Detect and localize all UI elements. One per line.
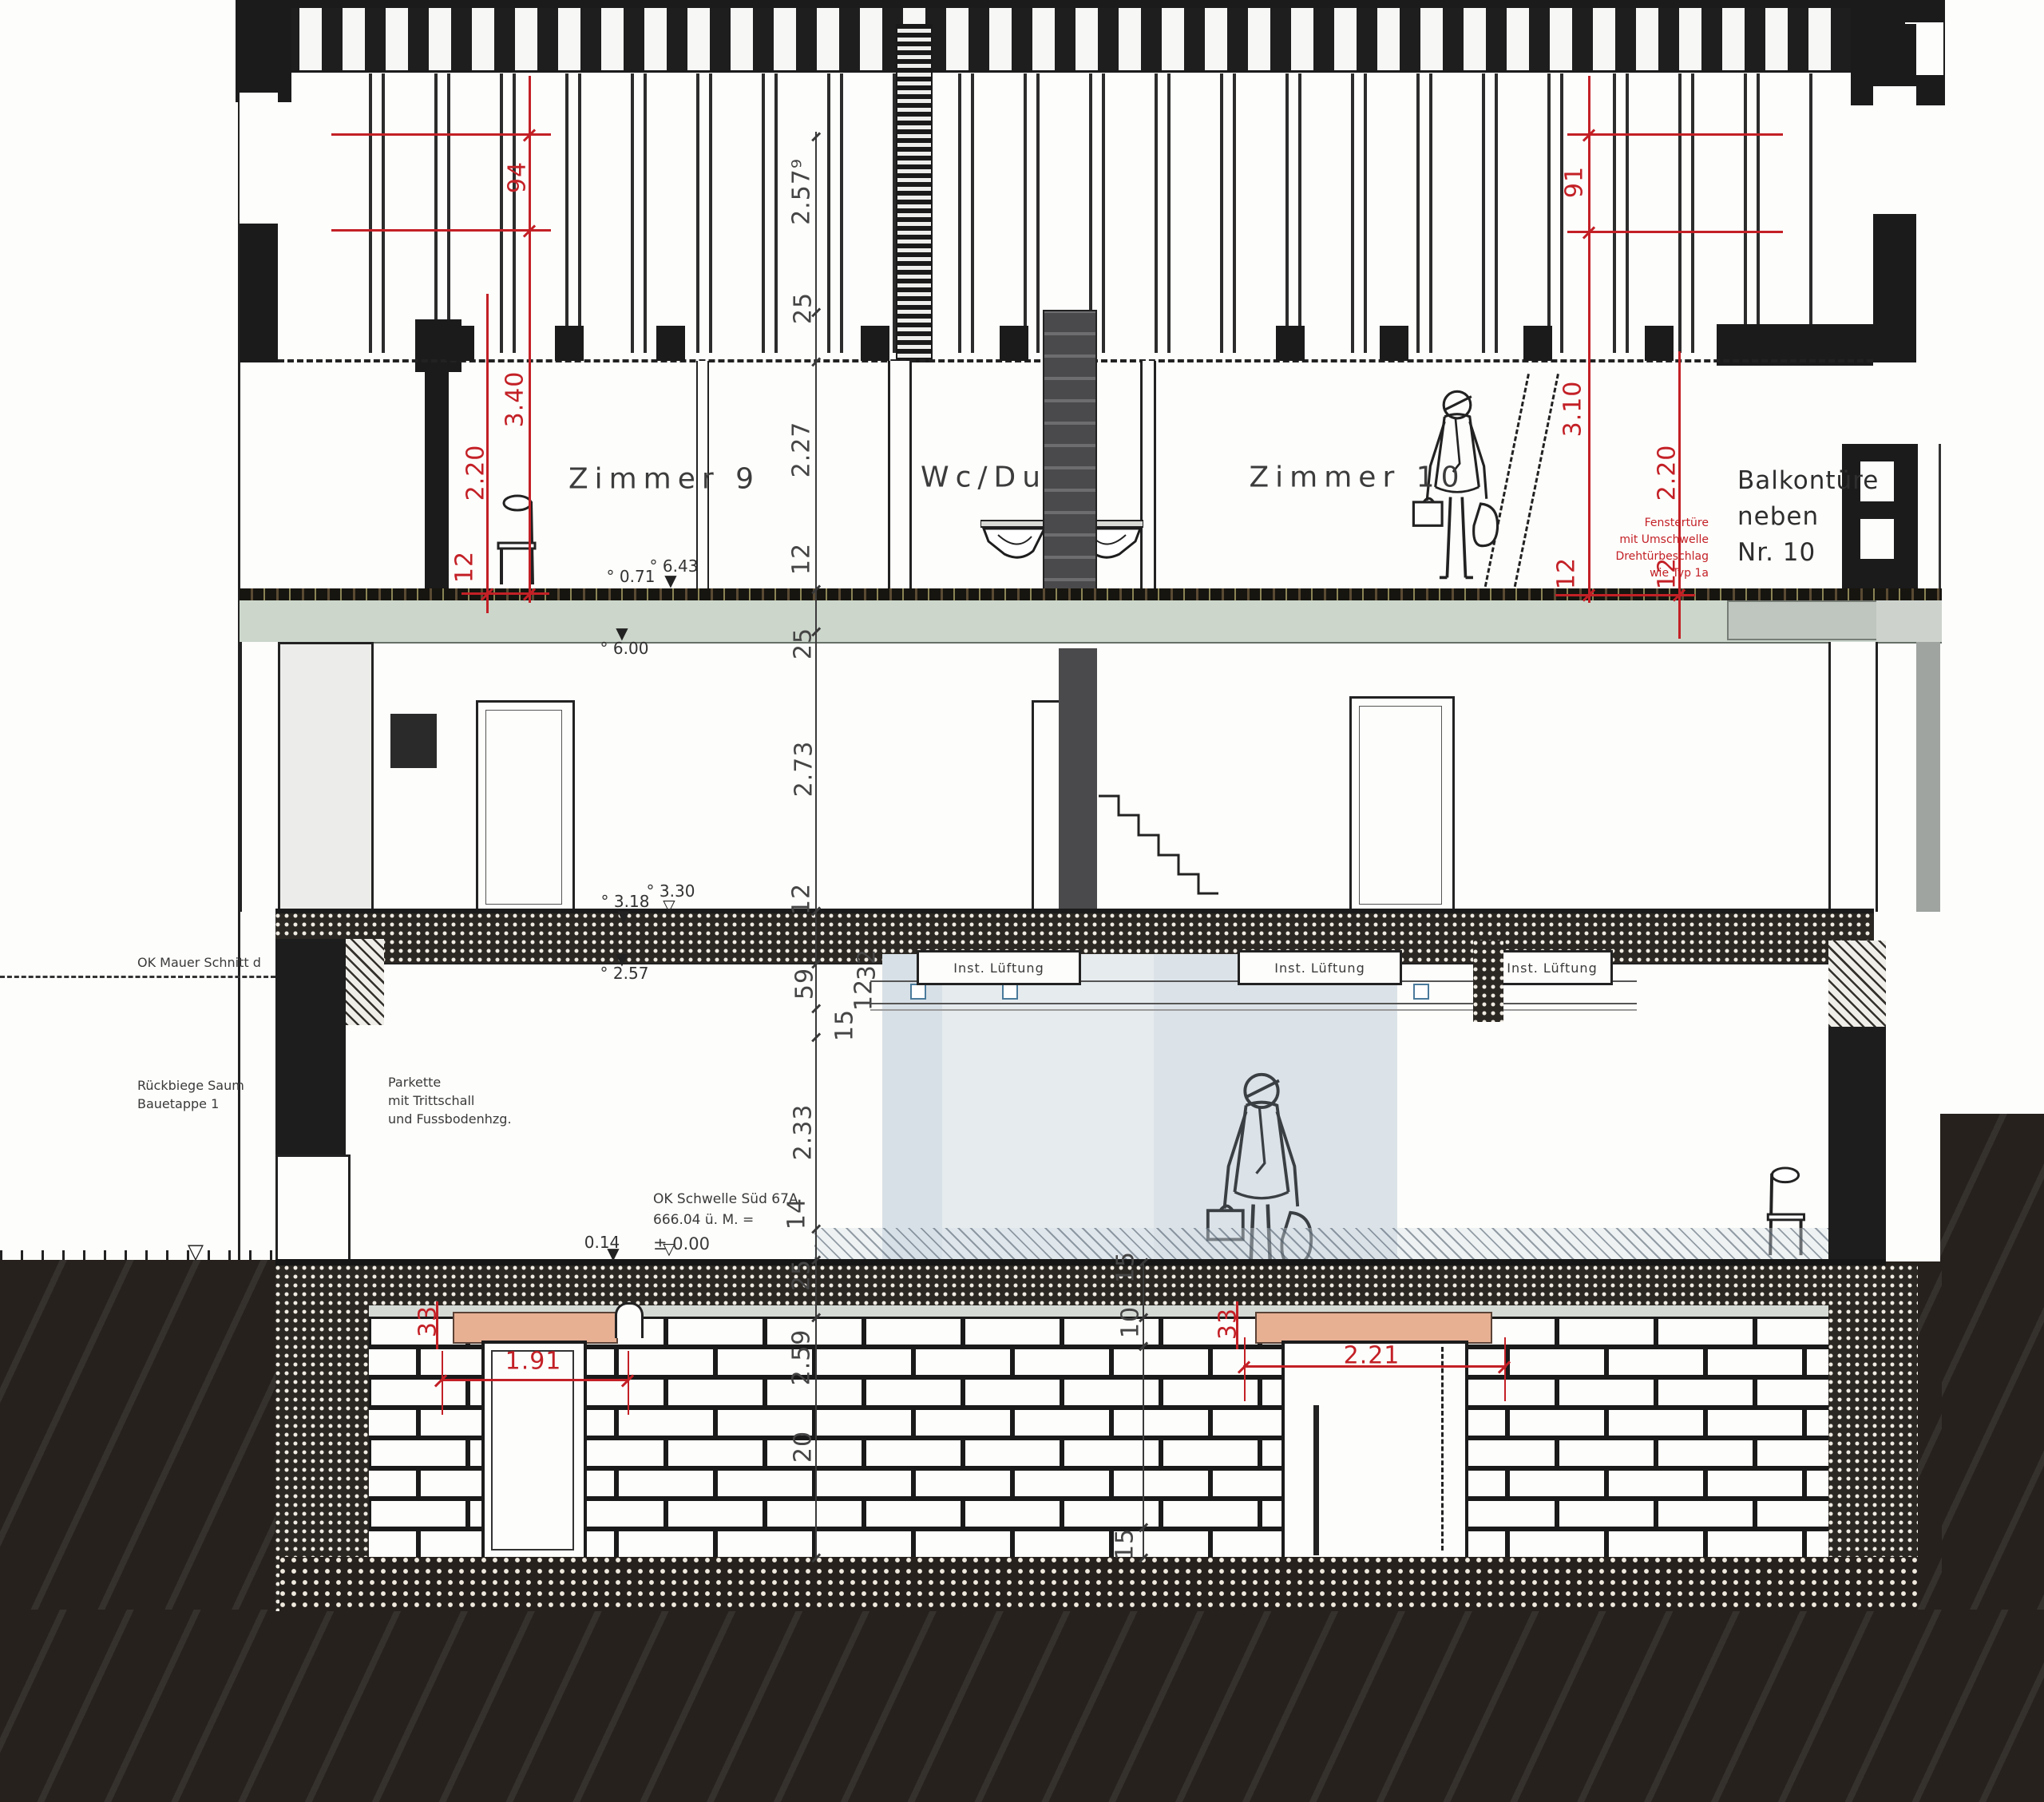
balcony-note-line-2: Nr. 10 [1737, 535, 1879, 571]
ground-slab-insulation [814, 1228, 1828, 1259]
balcony-door-note: BalkontürenebenNr. 10 [1737, 463, 1879, 571]
basement-door-right-handle [1313, 1405, 1319, 1555]
inst-lueftung-box-2: Inst. Lüftung [1238, 950, 1402, 985]
parkett-line-2: und Fussbodenhzg. [388, 1110, 512, 1128]
black-dim-2: 2.27 [788, 422, 816, 478]
black-dim-17: 10 [1117, 1306, 1145, 1338]
red-slab-tick-right [1555, 594, 1695, 596]
red-guide-basement-right-2 [1504, 1337, 1506, 1401]
black-dim-7: 59 [791, 968, 819, 1000]
note-schwelle: OK Schwelle Süd 67A666.04 ü. M. =± 0.00 [653, 1190, 798, 1257]
schwelle-line-2: ± 0.00 [653, 1232, 798, 1257]
stair-duct-shaft-attic [1043, 310, 1097, 602]
balcony-slab-right [1876, 600, 1942, 644]
chair-attic [493, 493, 553, 589]
downpipe-right [1916, 642, 1940, 912]
black-dim-11: 2.33 [790, 1104, 818, 1161]
red-dim-10: 2.21 [1344, 1342, 1400, 1370]
room-label-zimmer9: Zimmer 9 [568, 463, 760, 496]
ground-window-left [275, 1154, 351, 1265]
red-hline-right-top [1567, 133, 1783, 136]
attic-wall-left-window [240, 93, 278, 224]
black-dim-5: 2.73 [790, 741, 818, 798]
ground-slab-line [275, 1259, 1886, 1265]
red-dim-6: 2.20 [1654, 445, 1682, 501]
roof-rafter-band [236, 8, 1900, 73]
inst-lueftung-label-1: Inst. Lüftung [953, 960, 1044, 976]
black-dim-8: 32 [854, 949, 881, 980]
purlin-block-5 [1276, 326, 1305, 361]
ok-mauer-leader-dashed [0, 976, 275, 978]
level-triangle-icon-4: ▼ [617, 908, 629, 924]
purlin-block-2 [656, 326, 685, 361]
ground-slab-band [275, 1265, 1886, 1305]
terrain-level-marker-icon: ▽ [188, 1242, 204, 1262]
red-vline-right-outer [1588, 76, 1590, 603]
black-dim-3: 12 [788, 543, 816, 575]
terrain-grass-left [0, 1250, 275, 1260]
red-dim-4: 91 [1561, 166, 1589, 198]
diffuser-square-0 [910, 984, 926, 1000]
suspended-ceiling-line [870, 1009, 1637, 1011]
red-guide-basement-right-1 [1244, 1337, 1246, 1401]
balcony-note-line-0: Balkontüre [1737, 463, 1879, 499]
basement-brick-wall [369, 1317, 1828, 1557]
purlin-block-4 [1000, 326, 1028, 361]
red-dim-7: 12 [1553, 557, 1581, 589]
parkett-line-0: Parkette [388, 1073, 512, 1091]
section-drawing: ▽ [0, 0, 2044, 1802]
red-dim-5: 3.10 [1559, 381, 1587, 438]
black-dim-9: 12 [850, 979, 878, 1011]
stair-shaft-middle [1059, 648, 1097, 913]
foundation-gravel-band [279, 1557, 1918, 1611]
balcony-note-line-1: neben [1737, 499, 1879, 535]
black-dim-4: 25 [790, 628, 818, 659]
door-swing-glyph [615, 1302, 644, 1338]
chimney-shaft [896, 24, 933, 362]
red-dim-12: 33 [1214, 1308, 1242, 1340]
roof-edge-line [236, 0, 1900, 8]
schwelle-line-1: 666.04 ü. M. = [653, 1210, 798, 1231]
black-dim-14: 2.59 [788, 1329, 816, 1386]
attic-wall-right-window [1873, 86, 1916, 214]
purlin-block-0 [446, 326, 474, 361]
level-label-0: ° 0.71 [607, 567, 656, 586]
inst-lueftung-box-3: Inst. Lüftung [1491, 950, 1613, 985]
middle-wall-right [1828, 642, 1878, 912]
basement-door-right-swing-dashed [1441, 1347, 1444, 1551]
attic-floor-slab [240, 600, 1942, 644]
black-dim-10: 15 [831, 1009, 859, 1041]
level-triangle-icon-6: ▼ [607, 1246, 619, 1261]
red-note-line-1: mit Umschwelle [1613, 532, 1709, 549]
red-dim-11: 33 [414, 1305, 442, 1337]
ground-wall-left [275, 939, 346, 1154]
black-dim-13: 25 [788, 1259, 816, 1291]
lintel-left [453, 1312, 618, 1344]
red-dim-0: 94 [504, 161, 532, 193]
red-note-line-3: wie Typ 1a [1613, 565, 1709, 582]
purlin-block-3 [861, 326, 889, 361]
red-dim-3: 12 [451, 551, 479, 583]
schwelle-line-0: OK Schwelle Süd 67A [653, 1190, 798, 1210]
inst-lueftung-box-1: Inst. Lüftung [917, 950, 1081, 985]
level-triangle-icon-1: ▼ [664, 572, 676, 588]
terrain-bottom [0, 1610, 2044, 1802]
basement-door-right [1281, 1341, 1468, 1563]
red-slab-tick-left [461, 592, 549, 595]
black-dim-18: 15 [1111, 1528, 1139, 1560]
ground-wall-right [1828, 1027, 1886, 1261]
staircase-middle [1097, 794, 1218, 913]
level-triangle-icon-3: ▽ [663, 897, 675, 913]
red-hline-left-top [331, 133, 551, 136]
note-rueckbau: Rückbiege SaumBauetappe 1 [137, 1076, 244, 1113]
diffuser-square-1 [1002, 984, 1018, 1000]
diffuser-square-2 [1413, 984, 1429, 1000]
black-dim-16: 15 [1112, 1251, 1140, 1283]
door-middle-left-panel [485, 710, 562, 905]
ground-pier-checker [1473, 941, 1503, 1022]
ground-wall-right-hatch [1828, 941, 1886, 1027]
red-guide-basement-left-2 [628, 1351, 629, 1415]
inst-lueftung-label-3: Inst. Lüftung [1507, 960, 1597, 976]
red-dim-2: 2.20 [462, 445, 490, 501]
middle-window-left [240, 642, 283, 912]
door-middle-right-panel [1359, 706, 1442, 905]
ground-wall-left-hatch [346, 939, 384, 1025]
partition-zimmer9-wcdu [888, 361, 912, 588]
note-ok-mauer: OK Mauer Schnitt d [137, 953, 261, 972]
black-dim-15: 20 [790, 1431, 818, 1463]
rueckbau-line-0: Rückbiege Saum [137, 1076, 244, 1095]
red-dim-1: 3.40 [501, 371, 529, 428]
rueckbau-line-1: Bauetappe 1 [137, 1095, 244, 1113]
red-note-line-0: Fenstertüre [1613, 515, 1709, 532]
inst-lueftung-label-2: Inst. Lüftung [1274, 960, 1365, 976]
lintel-right [1255, 1312, 1492, 1344]
red-guide-basement-left-1 [442, 1351, 443, 1415]
red-hline-right-bottom [1567, 231, 1783, 233]
purlin-block-6 [1380, 326, 1408, 361]
level-triangle-icon-2: ▼ [616, 625, 628, 641]
red-dim-basement-left [441, 1379, 629, 1381]
window-door-red-note: Fenstertüremit UmschwelleDrehtürbeschlag… [1613, 515, 1709, 582]
parkett-line-1: mit Trittschall [388, 1091, 512, 1110]
room-label-zimmer10: Zimmer 10 [1249, 461, 1465, 494]
wall-cabinet [390, 714, 437, 768]
red-note-line-2: Drehtürbeschlag [1613, 549, 1709, 565]
red-vline-left-outer [529, 76, 531, 603]
purlin-block-8 [1645, 326, 1674, 361]
purlin-block-1 [555, 326, 584, 361]
balcony-parapet [1727, 600, 1880, 640]
purlin-block-7 [1523, 326, 1552, 361]
room-label-wcdu: Wc/Du [921, 461, 1047, 494]
red-dim-9: 1.91 [505, 1348, 562, 1376]
black-dim-6: 12 [788, 883, 816, 915]
note-parkett: Parkettemit Trittschallund Fussbodenhzg. [388, 1073, 512, 1129]
red-hline-left-bottom [331, 229, 551, 232]
middle-wall-left [278, 642, 374, 917]
black-dim-0: 2.57⁹ [788, 158, 816, 225]
level-triangle-icon-5: ▼ [616, 951, 628, 967]
black-dim-1: 25 [790, 292, 818, 324]
